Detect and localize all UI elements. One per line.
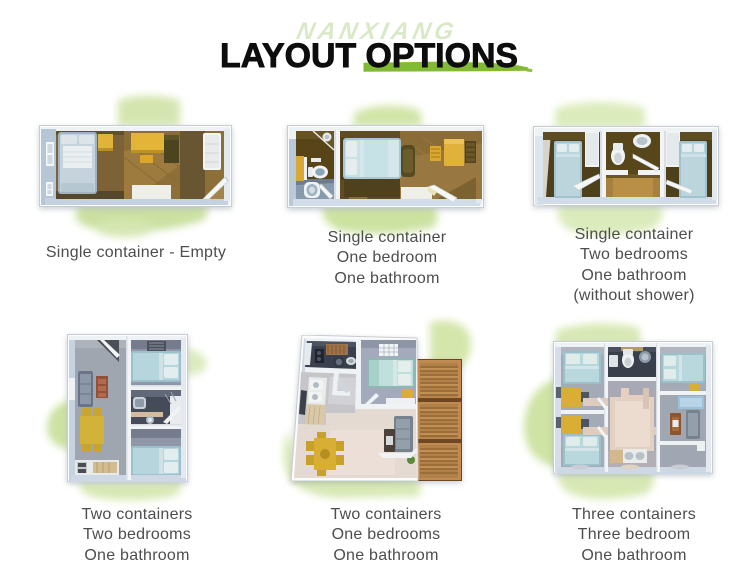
svg-text:LAYOUT OPTIONS: LAYOUT OPTIONS — [220, 37, 518, 75]
